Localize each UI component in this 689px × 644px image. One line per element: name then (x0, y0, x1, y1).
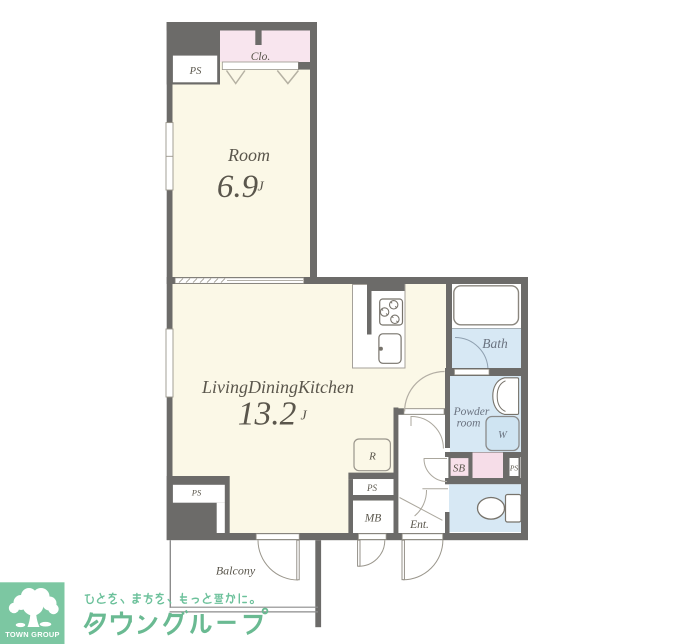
svg-text:PS: PS (191, 488, 202, 498)
svg-text:Balcony: Balcony (216, 564, 256, 578)
svg-text:room: room (457, 418, 481, 430)
svg-text:MB: MB (364, 513, 382, 525)
svg-text:R: R (368, 451, 376, 463)
svg-text:J: J (301, 409, 308, 424)
svg-text:Bath: Bath (482, 336, 508, 351)
svg-text:W: W (498, 430, 508, 441)
svg-text:SB: SB (453, 463, 466, 475)
svg-text:13.2: 13.2 (238, 396, 297, 433)
svg-text:TOWN GROUP: TOWN GROUP (5, 630, 60, 639)
svg-text:J: J (258, 180, 265, 195)
svg-text:Room: Room (227, 145, 270, 165)
svg-text:6.9: 6.9 (217, 169, 258, 205)
svg-text:Powder: Powder (453, 406, 490, 418)
svg-text:PS: PS (366, 483, 377, 493)
svg-text:PS: PS (509, 464, 519, 473)
svg-text:LivingDiningKitchen: LivingDiningKitchen (201, 377, 354, 397)
svg-text:PS: PS (189, 66, 202, 77)
svg-text:Clo.: Clo. (251, 51, 271, 63)
svg-text:Ent.: Ent. (409, 519, 429, 531)
